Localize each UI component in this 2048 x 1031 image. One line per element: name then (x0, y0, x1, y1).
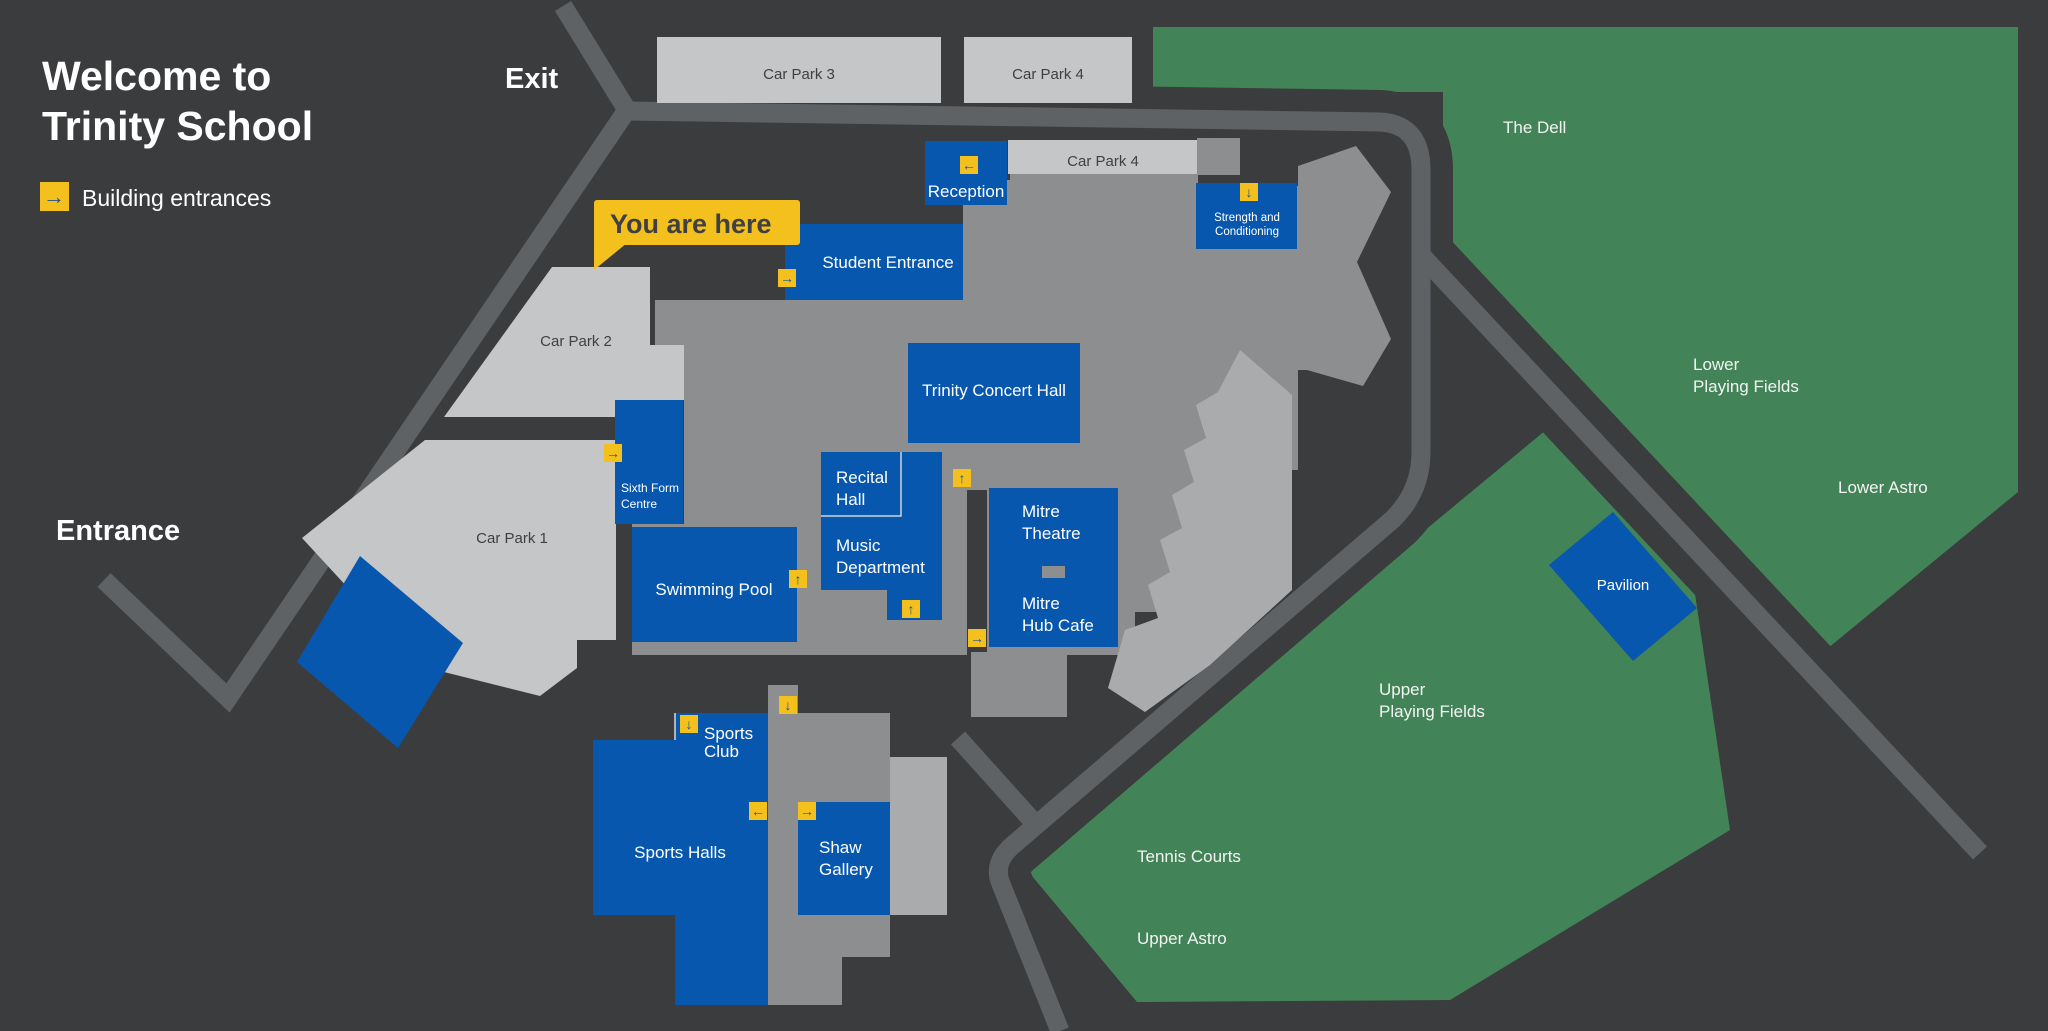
concert-hall-entrance-badge: ↑ (953, 469, 971, 487)
student-entrance-badge: → (778, 269, 796, 287)
map-title-line2: Trinity School (42, 103, 313, 149)
link-strip-entrance-badge: ↓ (779, 696, 797, 714)
shaw-block-east (890, 757, 947, 915)
down-arrow-icon: ↓ (1246, 184, 1253, 200)
music-label-2: Department (836, 558, 925, 577)
recital-label-2: Hall (836, 490, 865, 509)
exit-road (563, 6, 627, 110)
cafe-label-2: Hub Cafe (1022, 616, 1094, 635)
left-arrow-icon: ← (751, 803, 765, 819)
shaw-block-tail (798, 957, 842, 1005)
student-entrance-label: Student Entrance (822, 253, 953, 272)
legend-label: Building entrances (82, 185, 271, 211)
mitre-cafe-tab (1065, 566, 1118, 578)
up-arrow-icon: ↑ (795, 571, 802, 587)
you-are-here-callout: You are here (594, 200, 800, 270)
theatre-label-2: Theatre (1022, 524, 1081, 543)
lower-fields-label-1: Lower (1693, 355, 1740, 374)
music-label-1: Music (836, 536, 881, 555)
upper-astro-label: Upper Astro (1137, 929, 1227, 948)
lower-astro-label: Lower Astro (1838, 478, 1928, 497)
right-arrow-icon: → (800, 803, 814, 819)
tennis-path (958, 738, 1030, 818)
sports-halls-label: Sports Halls (634, 843, 726, 862)
upper-fields-label-2: Playing Fields (1379, 702, 1485, 721)
reception-label: Reception (928, 182, 1005, 201)
music-entrance-badge: ↑ (902, 600, 920, 618)
legend: → Building entrances (40, 182, 271, 211)
strength-label-1: Strength and (1214, 212, 1280, 224)
north-east-block (1197, 138, 1240, 175)
shaw-label-1: Shaw (819, 838, 862, 857)
strength-label-2: Conditioning (1215, 226, 1279, 238)
sixth-form-entrance-badge: → (604, 444, 622, 462)
sports-club-label-2: Club (704, 742, 739, 761)
zigzag-wing (1298, 146, 1391, 386)
strength-entrance-badge: ↓ (1240, 183, 1258, 201)
down-arrow-icon: ↓ (686, 716, 693, 732)
sixth-form-label-1: Sixth Form (621, 481, 679, 495)
right-arrow-icon: → (780, 270, 794, 286)
car-park-3-label: Car Park 3 (763, 66, 835, 83)
down-arrow-icon: ↓ (785, 697, 792, 713)
reception-entrance-badge: ← (960, 156, 978, 174)
swimming-pool-label: Swimming Pool (655, 580, 772, 599)
mitre-lower-block (971, 652, 1067, 717)
up-arrow-icon: ↑ (959, 470, 966, 486)
sports-link-strip (768, 685, 798, 1005)
right-arrow-icon: → (606, 445, 620, 461)
car-park-4-inner-label: Car Park 4 (1067, 153, 1139, 170)
cafe-entrance-badge: → (968, 629, 986, 647)
left-arrow-icon: ← (962, 157, 976, 173)
theatre-label-1: Mitre (1022, 502, 1060, 521)
the-dell-label: The Dell (1503, 118, 1566, 137)
map-title-line1: Welcome to (42, 53, 271, 99)
entrance-label: Entrance (56, 515, 180, 547)
shaw-label-2: Gallery (819, 860, 873, 879)
right-arrow-icon: → (43, 184, 65, 209)
recital-label-1: Recital (836, 468, 888, 487)
car-park-1-label: Car Park 1 (476, 530, 548, 547)
car-park-2-label: Car Park 2 (540, 333, 612, 350)
sports-club-label-1: Sports (704, 724, 753, 743)
campus-map: ← ↓ → → ↑ ↑ ↑ → ↓ ↓ ← → You are here Car… (0, 0, 2048, 1031)
shaw-entrance-badge: → (798, 802, 816, 820)
swimming-pool-entrance-badge: ↑ (789, 570, 807, 588)
sports-halls-entrance-badge: ← (749, 802, 767, 820)
mitre-theatre-tab (989, 566, 1042, 578)
tennis-courts-label: Tennis Courts (1137, 847, 1241, 866)
upper-fields-label-1: Upper (1379, 680, 1426, 699)
you-are-here-label: You are here (610, 209, 772, 239)
concert-hall-label: Trinity Concert Hall (922, 381, 1066, 400)
map-canvas: ← ↓ → → ↑ ↑ ↑ → ↓ ↓ ← → You are here Car… (0, 0, 2048, 1031)
right-arrow-icon: → (970, 630, 984, 646)
sports-halls-building (593, 740, 768, 1005)
exit-label: Exit (505, 63, 559, 95)
lower-fields-label-2: Playing Fields (1693, 377, 1799, 396)
car-park-4-top-label: Car Park 4 (1012, 66, 1084, 83)
up-arrow-icon: ↑ (908, 601, 915, 617)
pavilion-label: Pavilion (1597, 577, 1650, 594)
cafe-label-1: Mitre (1022, 594, 1060, 613)
sports-club-entrance-badge: ↓ (680, 715, 698, 733)
sixth-form-label-2: Centre (621, 497, 657, 511)
